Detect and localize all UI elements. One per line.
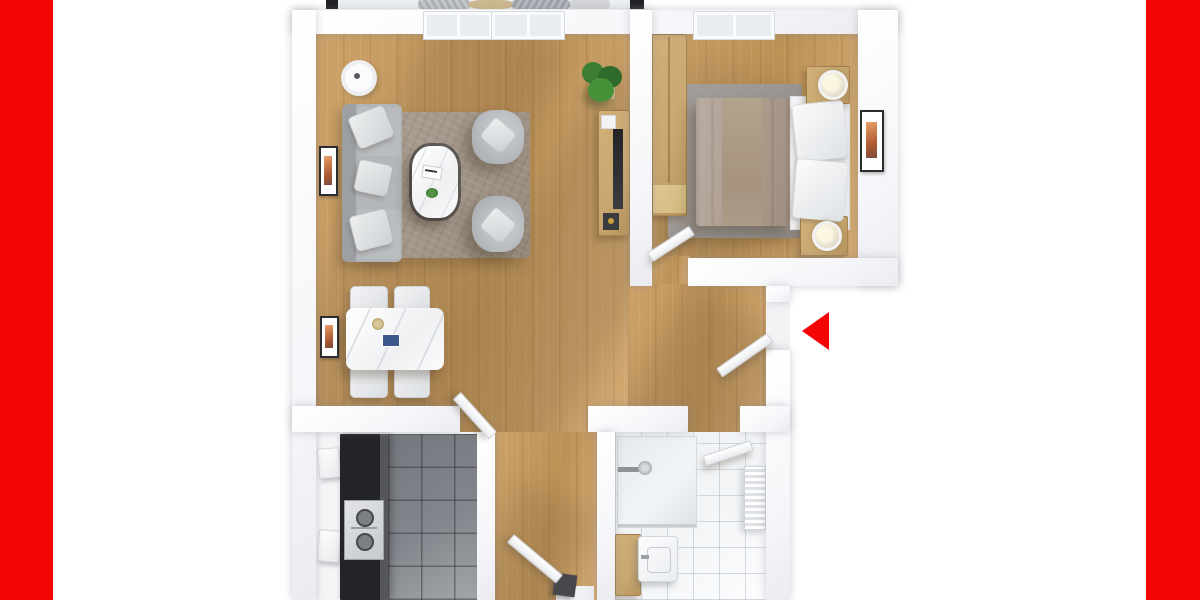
left-red-bar [0, 0, 53, 600]
floor-plan-image [0, 0, 1200, 600]
wall-corridor-bathroom [597, 432, 615, 600]
outer-wall-entry-right-lower [766, 350, 790, 600]
cooktop-divider [351, 527, 377, 529]
balcony-table [468, 0, 514, 9]
wardrobe-end [653, 185, 686, 213]
living-room-window [424, 12, 492, 39]
armchair [472, 110, 524, 164]
magazine [421, 165, 443, 181]
wall-kitchen-corridor [477, 432, 495, 600]
burner [356, 509, 374, 527]
kitchen-wall-cabinet [317, 447, 342, 479]
wall-lamp-center [354, 73, 360, 79]
wall-art [320, 316, 339, 358]
wall-lamp [341, 60, 377, 96]
wardrobe-door-seam [668, 37, 670, 183]
cooktop [344, 500, 384, 560]
basin [647, 547, 671, 573]
wall-bedroom-bottom [688, 258, 898, 286]
bedroom-window [694, 12, 774, 39]
plant-foliage [588, 78, 614, 102]
wardrobe [652, 34, 687, 216]
wall-living-bedroom [630, 10, 652, 286]
shower [617, 436, 697, 528]
shower-head [638, 461, 652, 475]
entrance-arrow [802, 312, 829, 350]
table-book [382, 334, 400, 347]
kitchen-tiled-floor [388, 434, 477, 600]
outer-wall-top [292, 10, 898, 34]
armchair-cushion [479, 116, 517, 154]
balcony-chair [512, 0, 570, 9]
dining-chair [394, 366, 430, 398]
balcony-railing-post [326, 0, 338, 9]
outer-wall-left [292, 10, 316, 600]
table-plant-sprig [426, 188, 438, 198]
throw-pillow [353, 159, 393, 197]
bed-duvet [696, 98, 792, 226]
potted-plant [582, 62, 622, 104]
armchair-cushion [479, 206, 517, 244]
dining-table [346, 308, 444, 370]
living-room-window [492, 12, 564, 39]
balcony-railing-post [630, 0, 644, 9]
wall-bathroom-top-left [588, 406, 688, 432]
table-bowl [372, 318, 384, 330]
table-lamp [812, 221, 842, 251]
tv-screen [613, 129, 623, 209]
balcony-furniture [570, 0, 610, 9]
bed-runner [722, 98, 762, 226]
decor-box [603, 213, 619, 230]
washbasin [638, 536, 678, 582]
bedroom-wall-art [860, 110, 884, 172]
bed-pillow [791, 99, 849, 162]
wall-art-print [325, 325, 333, 349]
tv-sideboard [598, 110, 630, 236]
dining-chair [350, 366, 388, 398]
shower-glass-edge [618, 524, 696, 527]
outer-wall-entry-right-upper [766, 286, 790, 302]
wall-art [319, 146, 338, 196]
books [601, 115, 616, 129]
kitchen-wall-cabinet [317, 529, 341, 562]
wall-bathroom-top-right [740, 406, 790, 432]
faucet [641, 555, 649, 559]
balcony-strip [326, 0, 644, 9]
burner [356, 533, 374, 551]
balcony-chair [418, 0, 470, 9]
towel-radiator [744, 466, 766, 530]
wall-art-print [866, 122, 877, 158]
armchair [472, 196, 524, 252]
kitchen-counter [340, 434, 388, 600]
wall-art-print [324, 156, 332, 185]
wall-kitchen-top [292, 406, 460, 432]
table-lamp [818, 70, 848, 100]
right-red-bar [1146, 0, 1200, 600]
bed-pillow [791, 158, 848, 222]
decor-gold-dot [608, 218, 614, 224]
coffee-table [412, 146, 458, 218]
